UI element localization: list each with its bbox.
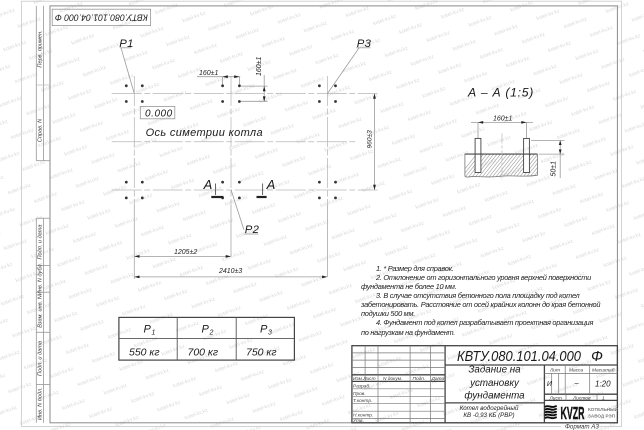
- svg-text:700 кг: 700 кг: [188, 347, 219, 359]
- svg-text:КОТЕЛЬНЫЙ: КОТЕЛЬНЫЙ: [588, 405, 618, 412]
- svg-text:Р: Р: [202, 323, 210, 335]
- svg-text:160±1: 160±1: [493, 116, 513, 123]
- svg-text:550 кг: 550 кг: [129, 347, 160, 359]
- svg-text:2: 2: [209, 329, 214, 336]
- svg-text:Котел водогрейный: Котел водогрейный: [460, 405, 519, 412]
- svg-text:Ось симетрии котла: Ось симетрии котла: [146, 127, 263, 139]
- svg-text:Масса: Масса: [569, 368, 584, 374]
- svg-text:Изм.Лист: Изм.Лист: [353, 376, 376, 382]
- svg-text:Листов: Листов: [572, 396, 591, 402]
- svg-text:3: 3: [268, 329, 272, 336]
- svg-text:ЗАВОД РЭП: ЗАВОД РЭП: [588, 414, 615, 419]
- svg-text:960±3: 960±3: [367, 130, 374, 149]
- svg-text:Инв. N дубл.: Инв. N дубл.: [38, 263, 44, 295]
- svg-text:Дата: Дата: [431, 376, 445, 382]
- svg-text:Масштаб: Масштаб: [592, 368, 615, 374]
- svg-text:1: 1: [152, 329, 156, 336]
- svg-text:Справ. N: Справ. N: [38, 118, 44, 142]
- svg-text:Н.контр.: Н.контр.: [353, 412, 373, 418]
- svg-text:750 кг: 750 кг: [246, 347, 277, 359]
- svg-text:1: 1: [602, 396, 605, 402]
- svg-text:KVZR: KVZR: [561, 403, 585, 423]
- svg-text:Р1: Р1: [119, 38, 133, 50]
- svg-text:Р: Р: [144, 323, 152, 335]
- svg-text:А – А (1:5): А – А (1:5): [467, 86, 534, 100]
- svg-text:Разраб.: Разраб.: [353, 384, 370, 390]
- svg-text:160±1: 160±1: [256, 56, 263, 76]
- svg-text:N докум.: N докум.: [383, 376, 402, 382]
- svg-text:1:20: 1:20: [595, 380, 611, 389]
- svg-text:Пров.: Пров.: [353, 391, 366, 397]
- svg-text:Т.контр.: Т.контр.: [353, 398, 372, 404]
- svg-text:Подп. и дата: Подп. и дата: [38, 341, 44, 376]
- svg-text:Лист: Лист: [549, 396, 562, 402]
- svg-text:160±1: 160±1: [199, 70, 219, 77]
- svg-text:–: –: [574, 379, 580, 388]
- svg-text:Ф: Ф: [591, 348, 603, 365]
- svg-text:Подп.: Подп.: [413, 376, 426, 382]
- svg-text:2410±3: 2410±3: [218, 268, 242, 275]
- svg-text:А: А: [266, 177, 276, 192]
- svg-text:КВ -0,93 КБ (РВР): КВ -0,93 КБ (РВР): [463, 412, 514, 419]
- svg-text:Инв. N подл.: Инв. N подл.: [38, 387, 44, 420]
- svg-text:Задание на: Задание на: [468, 365, 521, 376]
- svg-text:Подп. и дата: Подп. и дата: [38, 224, 44, 259]
- svg-text:0.000: 0.000: [145, 108, 173, 119]
- svg-text:Р3: Р3: [357, 38, 372, 50]
- svg-text:Перв. примен.: Перв. примен.: [38, 30, 44, 67]
- svg-text:Утв.: Утв.: [353, 418, 364, 424]
- svg-text:А: А: [203, 177, 213, 192]
- svg-text:Лит: Лит: [549, 368, 560, 374]
- svg-text:установку: установку: [469, 378, 520, 389]
- svg-text:КВТУ.080.101.04.000 Ф: КВТУ.080.101.04.000 Ф: [55, 12, 148, 22]
- svg-text:КВТУ.080.101.04.000: КВТУ.080.101.04.000: [457, 348, 582, 365]
- svg-text:Взам. инв. N: Взам. инв. N: [38, 294, 44, 328]
- svg-text:50±1: 50±1: [551, 161, 558, 177]
- svg-text:Р2: Р2: [245, 224, 260, 236]
- svg-text:Формат А3: Формат А3: [565, 423, 599, 430]
- svg-text:фундамента: фундамента: [464, 391, 525, 402]
- svg-text:Р: Р: [260, 323, 268, 335]
- svg-text:1205±2: 1205±2: [174, 249, 197, 256]
